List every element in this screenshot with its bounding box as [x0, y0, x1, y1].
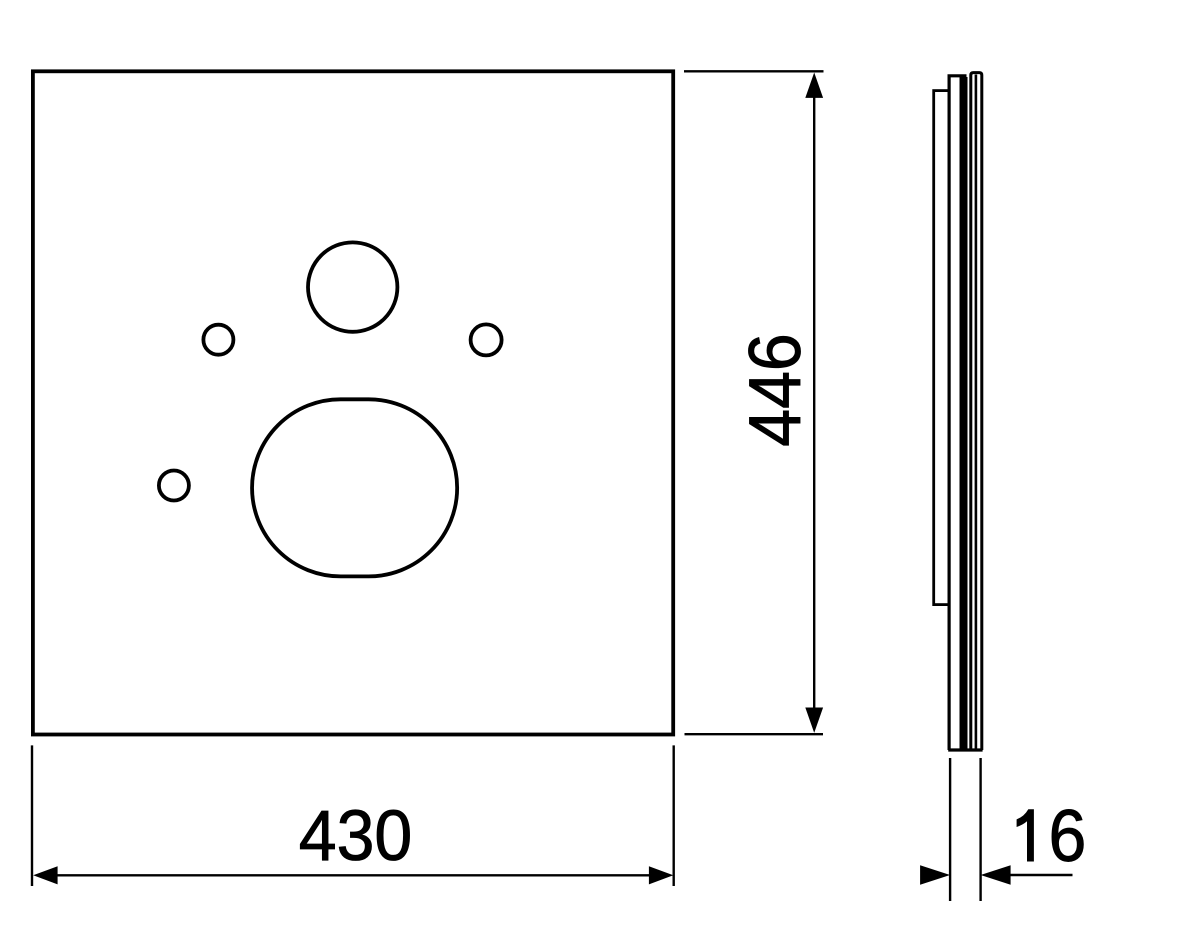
svg-text:430: 430 — [299, 795, 413, 875]
svg-text:446: 446 — [734, 333, 816, 447]
svg-text:6: 6 — [1049, 795, 1087, 877]
